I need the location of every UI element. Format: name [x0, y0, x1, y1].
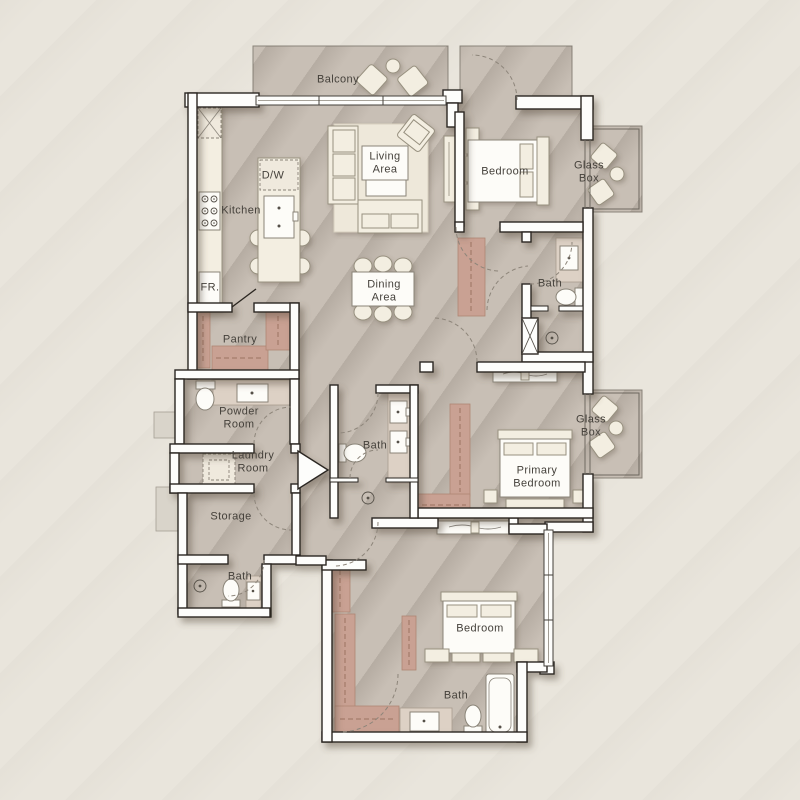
room-label-glass-box-top: Glass Box: [569, 159, 609, 184]
tv-console-icon: [444, 136, 455, 202]
room-label-bath-left: Bath: [228, 571, 252, 584]
room-label-storage: Storage: [210, 511, 251, 524]
bathtub-icon: [486, 674, 514, 737]
room-label-bath-top: Bath: [538, 278, 562, 291]
room-label-living-area: Living Area: [363, 150, 407, 175]
room-label-dishwasher: D/W: [262, 170, 285, 183]
console-table-icon: [437, 521, 513, 534]
room-label-dining-area: Dining Area: [361, 278, 407, 303]
sink-icon: [237, 384, 268, 402]
toilet-icon: [464, 705, 482, 733]
sofa-icon: [328, 126, 358, 204]
room-label-powder-room: Powder Room: [208, 405, 270, 430]
room-label-laundry-room: Laundry Room: [222, 449, 284, 474]
room-label-bath-bottom: Bath: [444, 690, 468, 703]
room-label-bedroom-bottom: Bedroom: [456, 623, 503, 636]
room-label-balcony: Balcony: [317, 74, 359, 87]
room-label-pantry: Pantry: [223, 334, 257, 347]
sink-icon: [410, 712, 439, 731]
kitchen-counter: [197, 107, 222, 310]
toilet-icon: [556, 288, 583, 306]
bedroom-window-wall: [544, 530, 553, 666]
room-label-bedroom-top: Bedroom: [481, 166, 528, 179]
balcony-sliding-door: [256, 96, 446, 105]
room-label-glass-box-middle: Glass Box: [571, 413, 611, 438]
floor-plan-drawing: [0, 0, 800, 800]
floor-plan-canvas: Balcony Living Area Bedroom Glass Box D/…: [0, 0, 800, 800]
room-label-kitchen: Kitchen: [221, 205, 261, 218]
sofa-icon: [358, 200, 422, 233]
room-label-fridge: FR.: [201, 282, 220, 295]
cooktop-icon: [199, 192, 220, 230]
room-label-bath-middle: Bath: [363, 440, 387, 453]
sink-icon: [264, 196, 298, 238]
vent-shaft-icon: [522, 318, 538, 354]
room-label-primary-bedroom: Primary Bedroom: [499, 464, 575, 489]
